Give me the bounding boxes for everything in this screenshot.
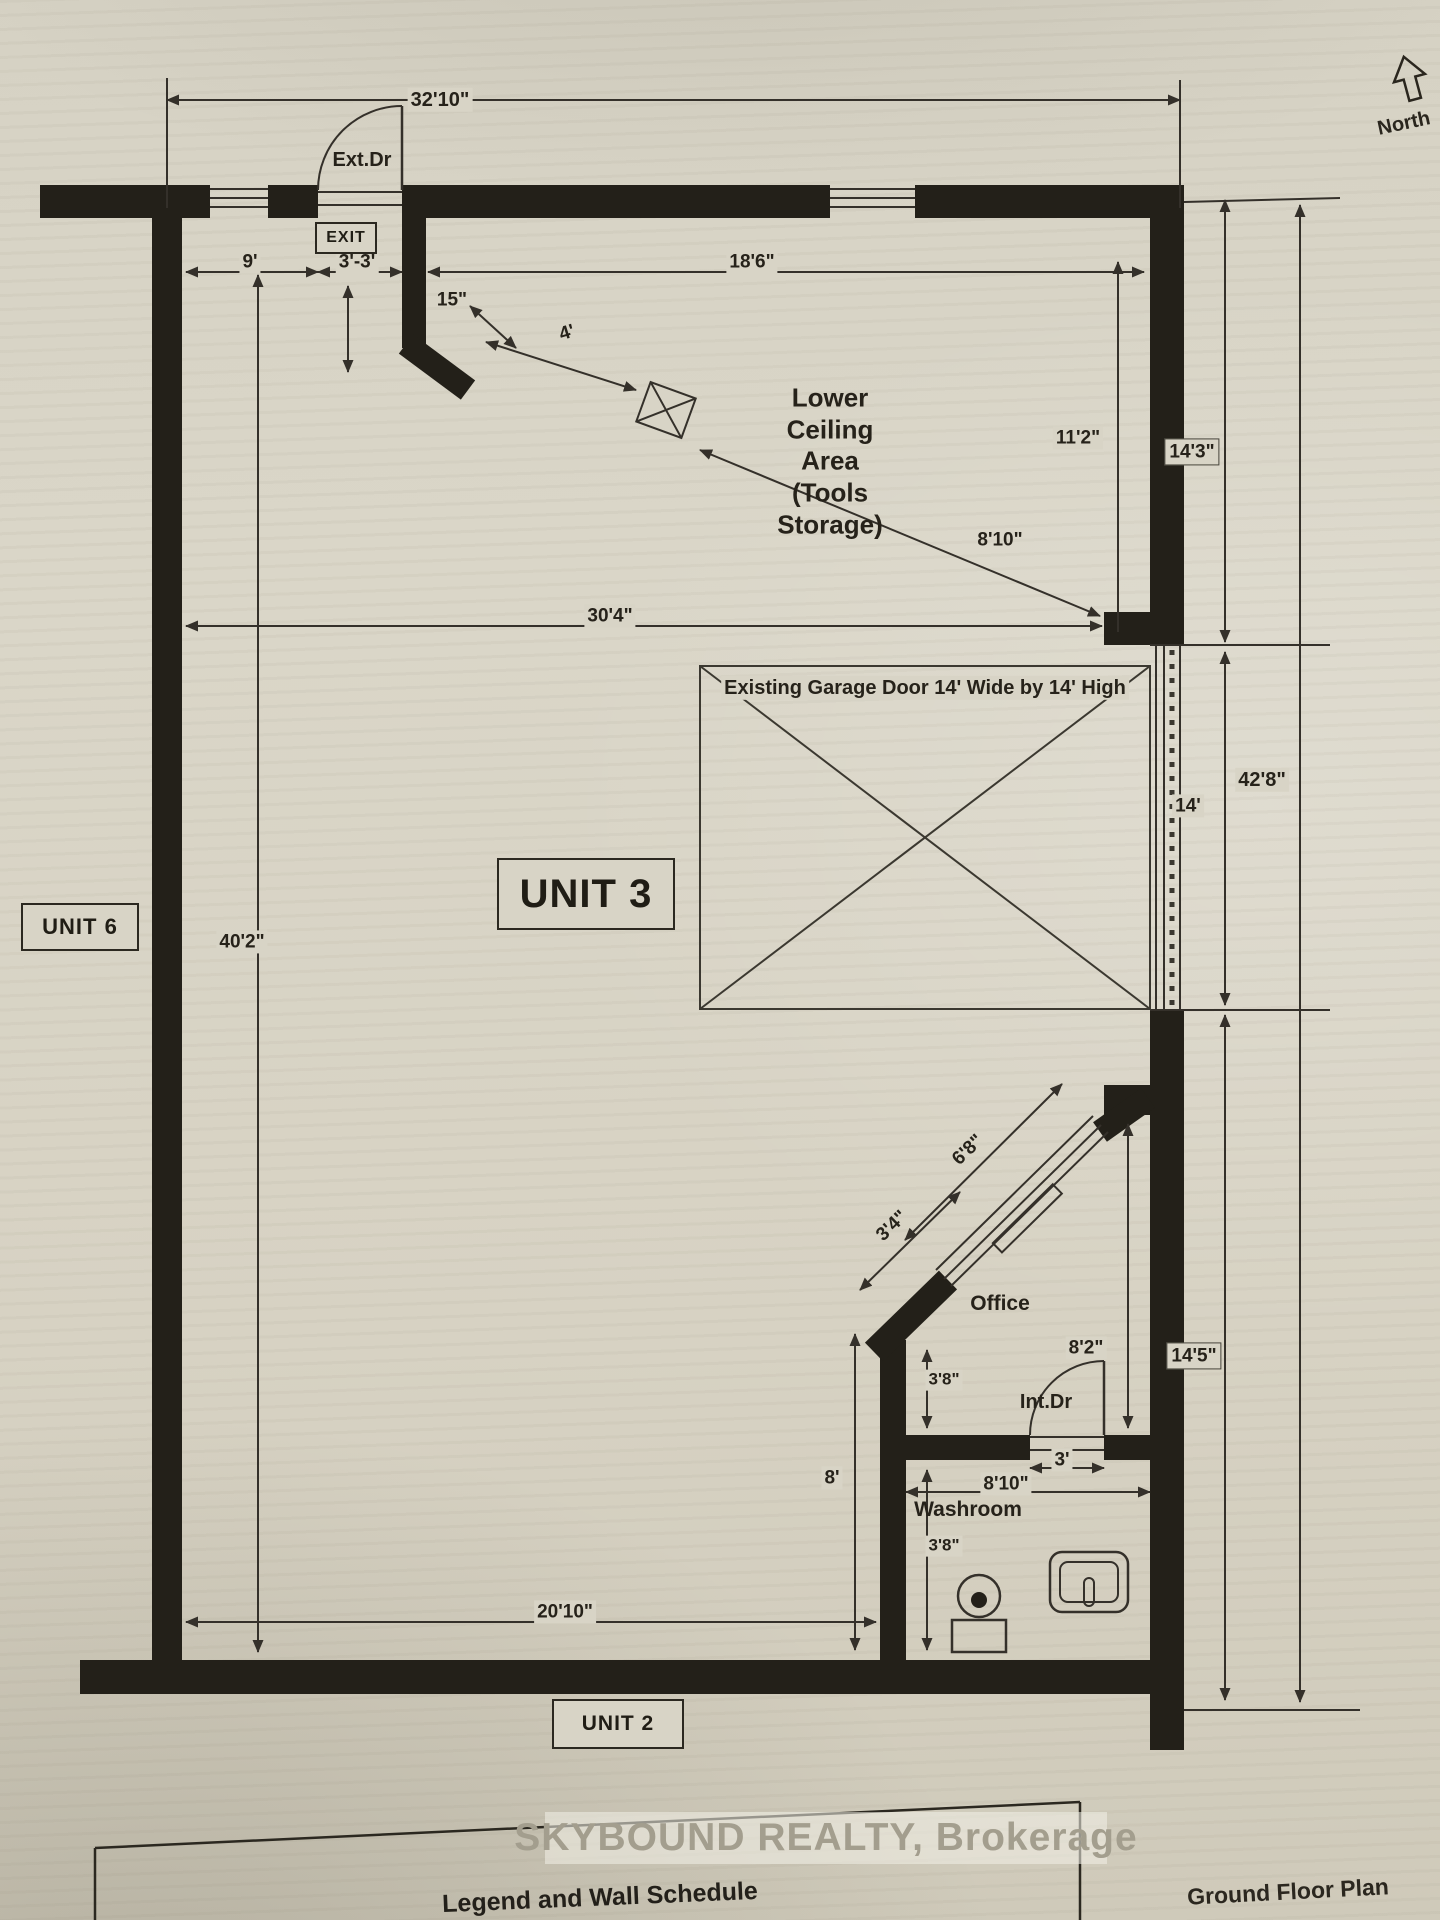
dim-15: 15" xyxy=(434,288,470,311)
dim-11-2: 11'2" xyxy=(1053,426,1103,449)
garage-door-area-marker xyxy=(700,666,1150,1009)
dim-14-3: 14'3" xyxy=(1164,438,1219,465)
dim-line-8-10-diagonal xyxy=(700,450,1100,616)
wall-east-upper xyxy=(1150,185,1184,645)
dim-line-15 xyxy=(470,306,516,348)
dim-20-10: 20'10" xyxy=(534,1600,596,1623)
dim-14-5: 14'5" xyxy=(1166,1342,1221,1369)
wall-office-partition xyxy=(880,1340,906,1660)
extension-line-top-right xyxy=(1184,198,1340,202)
dim-8-10-diagonal: 8'10" xyxy=(974,528,1025,551)
dim-line-3-4 xyxy=(860,1192,960,1290)
north-arrow-shape xyxy=(1388,53,1430,104)
sink-basin xyxy=(1060,1562,1118,1602)
wall-north-segment-2 xyxy=(268,185,318,218)
window-pane-detail xyxy=(993,1184,1062,1252)
dim-9: 9' xyxy=(239,250,260,273)
wall-north-segment-4 xyxy=(915,185,1184,218)
label-office: Office xyxy=(967,1291,1033,1317)
dim-3: 3' xyxy=(1051,1448,1072,1471)
dim-32-10: 32'10" xyxy=(408,88,473,112)
wall-washroom-divider-left xyxy=(906,1435,1030,1460)
label-washroom: Washroom xyxy=(911,1497,1025,1523)
structural-column xyxy=(636,382,695,438)
dim-8-10-washroom: 8'10" xyxy=(980,1472,1031,1495)
wall-east-upper-stub xyxy=(1104,612,1150,645)
brokerage-watermark: SKYBOUND REALTY, Brokerage xyxy=(545,1812,1107,1864)
wall-washroom-divider-right xyxy=(1104,1435,1150,1460)
wall-angled-15in xyxy=(406,344,468,390)
dim-8-2: 8'2" xyxy=(1066,1336,1107,1359)
wall-office-diagonal xyxy=(874,1280,948,1352)
garage-door-opening xyxy=(1150,645,1330,1010)
wall-north-segment-1 xyxy=(40,185,210,218)
toilet-base xyxy=(952,1620,1006,1652)
floor-plan-drawing xyxy=(0,0,1440,1920)
toilet-drain xyxy=(971,1592,987,1608)
dim-40-2: 40'2" xyxy=(216,930,267,953)
dim-30-4: 30'4" xyxy=(584,604,635,627)
dim-3-8-lower: 3'8" xyxy=(925,1536,962,1557)
unit-3-label: UNIT 3 xyxy=(497,858,675,930)
wall-west xyxy=(152,185,182,1660)
wall-east-lower xyxy=(1150,1010,1184,1750)
dim-18-6: 18'6" xyxy=(726,250,777,273)
wall-south xyxy=(80,1660,1184,1694)
dim-42-8: 42'8" xyxy=(1235,768,1289,792)
label-lower-ceiling: Lower Ceiling Area (Tools Storage) xyxy=(774,383,885,542)
wall-entry-recess xyxy=(402,218,426,348)
north-arrow-icon xyxy=(1388,53,1430,104)
label-garage: Existing Garage Door 14' Wide by 14' Hig… xyxy=(721,676,1129,700)
unit-2-label: UNIT 2 xyxy=(552,1699,684,1749)
dim-line-4 xyxy=(486,342,636,390)
label-int-dr: Int.Dr xyxy=(1017,1390,1075,1414)
unit-6-label: UNIT 6 xyxy=(21,903,139,951)
dim-3-8-upper: 3'8" xyxy=(925,1370,962,1391)
dim-14: 14' xyxy=(1172,794,1204,817)
dim-8: 8' xyxy=(821,1466,842,1489)
washroom-fixtures xyxy=(952,1552,1128,1652)
label-ext-dr: Ext.Dr xyxy=(330,148,395,172)
exit-sign: EXIT xyxy=(315,222,377,254)
wall-north-segment-3 xyxy=(402,185,830,218)
